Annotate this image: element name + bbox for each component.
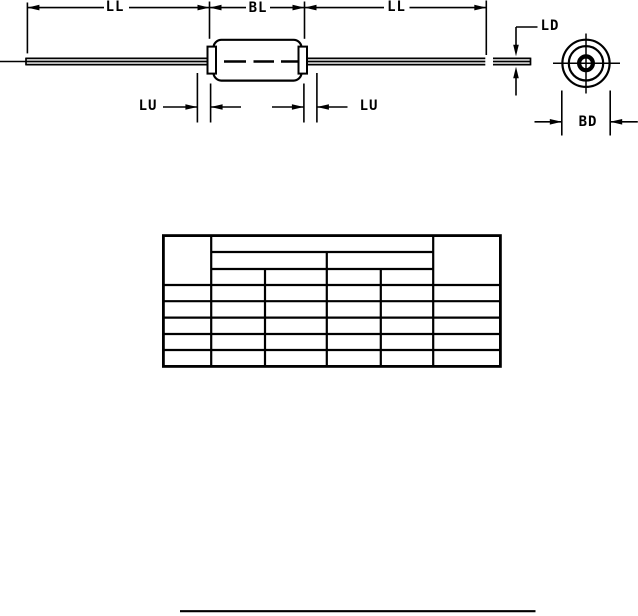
technical-drawing [0,0,638,616]
end-view [553,34,620,94]
lead-left [26,58,210,66]
dimension-table [163,236,500,367]
body-flange-left [208,47,217,74]
label-lead-upset-right: LU [356,100,382,113]
front-view [0,40,531,81]
label-lead-length-right: LL [384,1,410,14]
body-outline [214,40,302,81]
lead-right [307,58,531,66]
label-lead-upset-left: LU [135,100,161,113]
dim-LU-right [272,104,348,110]
page: LL BL LL LU LU LD BD [0,0,638,616]
dim-LU-left [163,104,241,110]
label-lead-diameter: LD [537,20,563,33]
label-body-diameter: BD [575,116,601,129]
label-lead-length-left: LL [102,1,128,14]
label-body-length: BL [245,2,271,15]
component-body [208,40,308,81]
body-flange-right [299,47,308,74]
